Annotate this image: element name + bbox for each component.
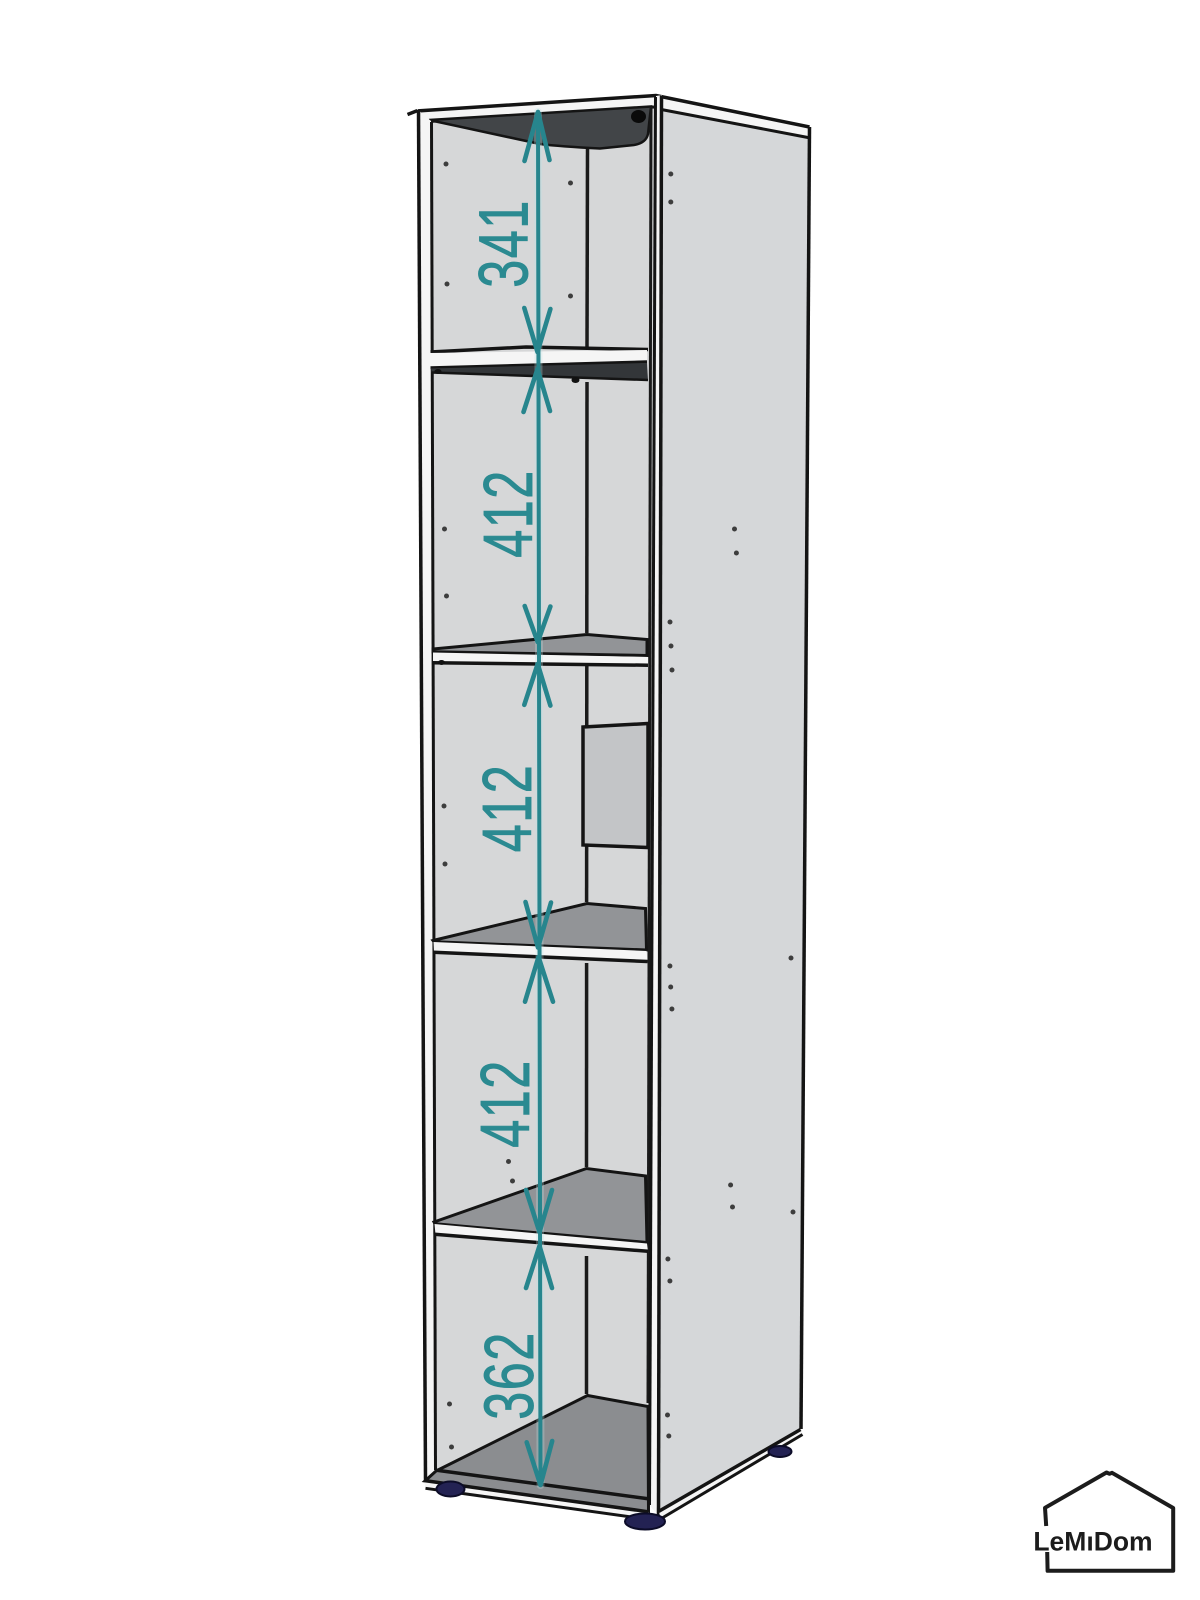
svg-text:412: 412 — [469, 469, 547, 557]
svg-text:362: 362 — [470, 1331, 548, 1419]
svg-text:412: 412 — [468, 764, 546, 852]
svg-text:LeMıDom: LeMıDom — [1033, 1527, 1152, 1557]
svg-text:341: 341 — [464, 199, 542, 287]
svg-text:412: 412 — [466, 1059, 544, 1147]
